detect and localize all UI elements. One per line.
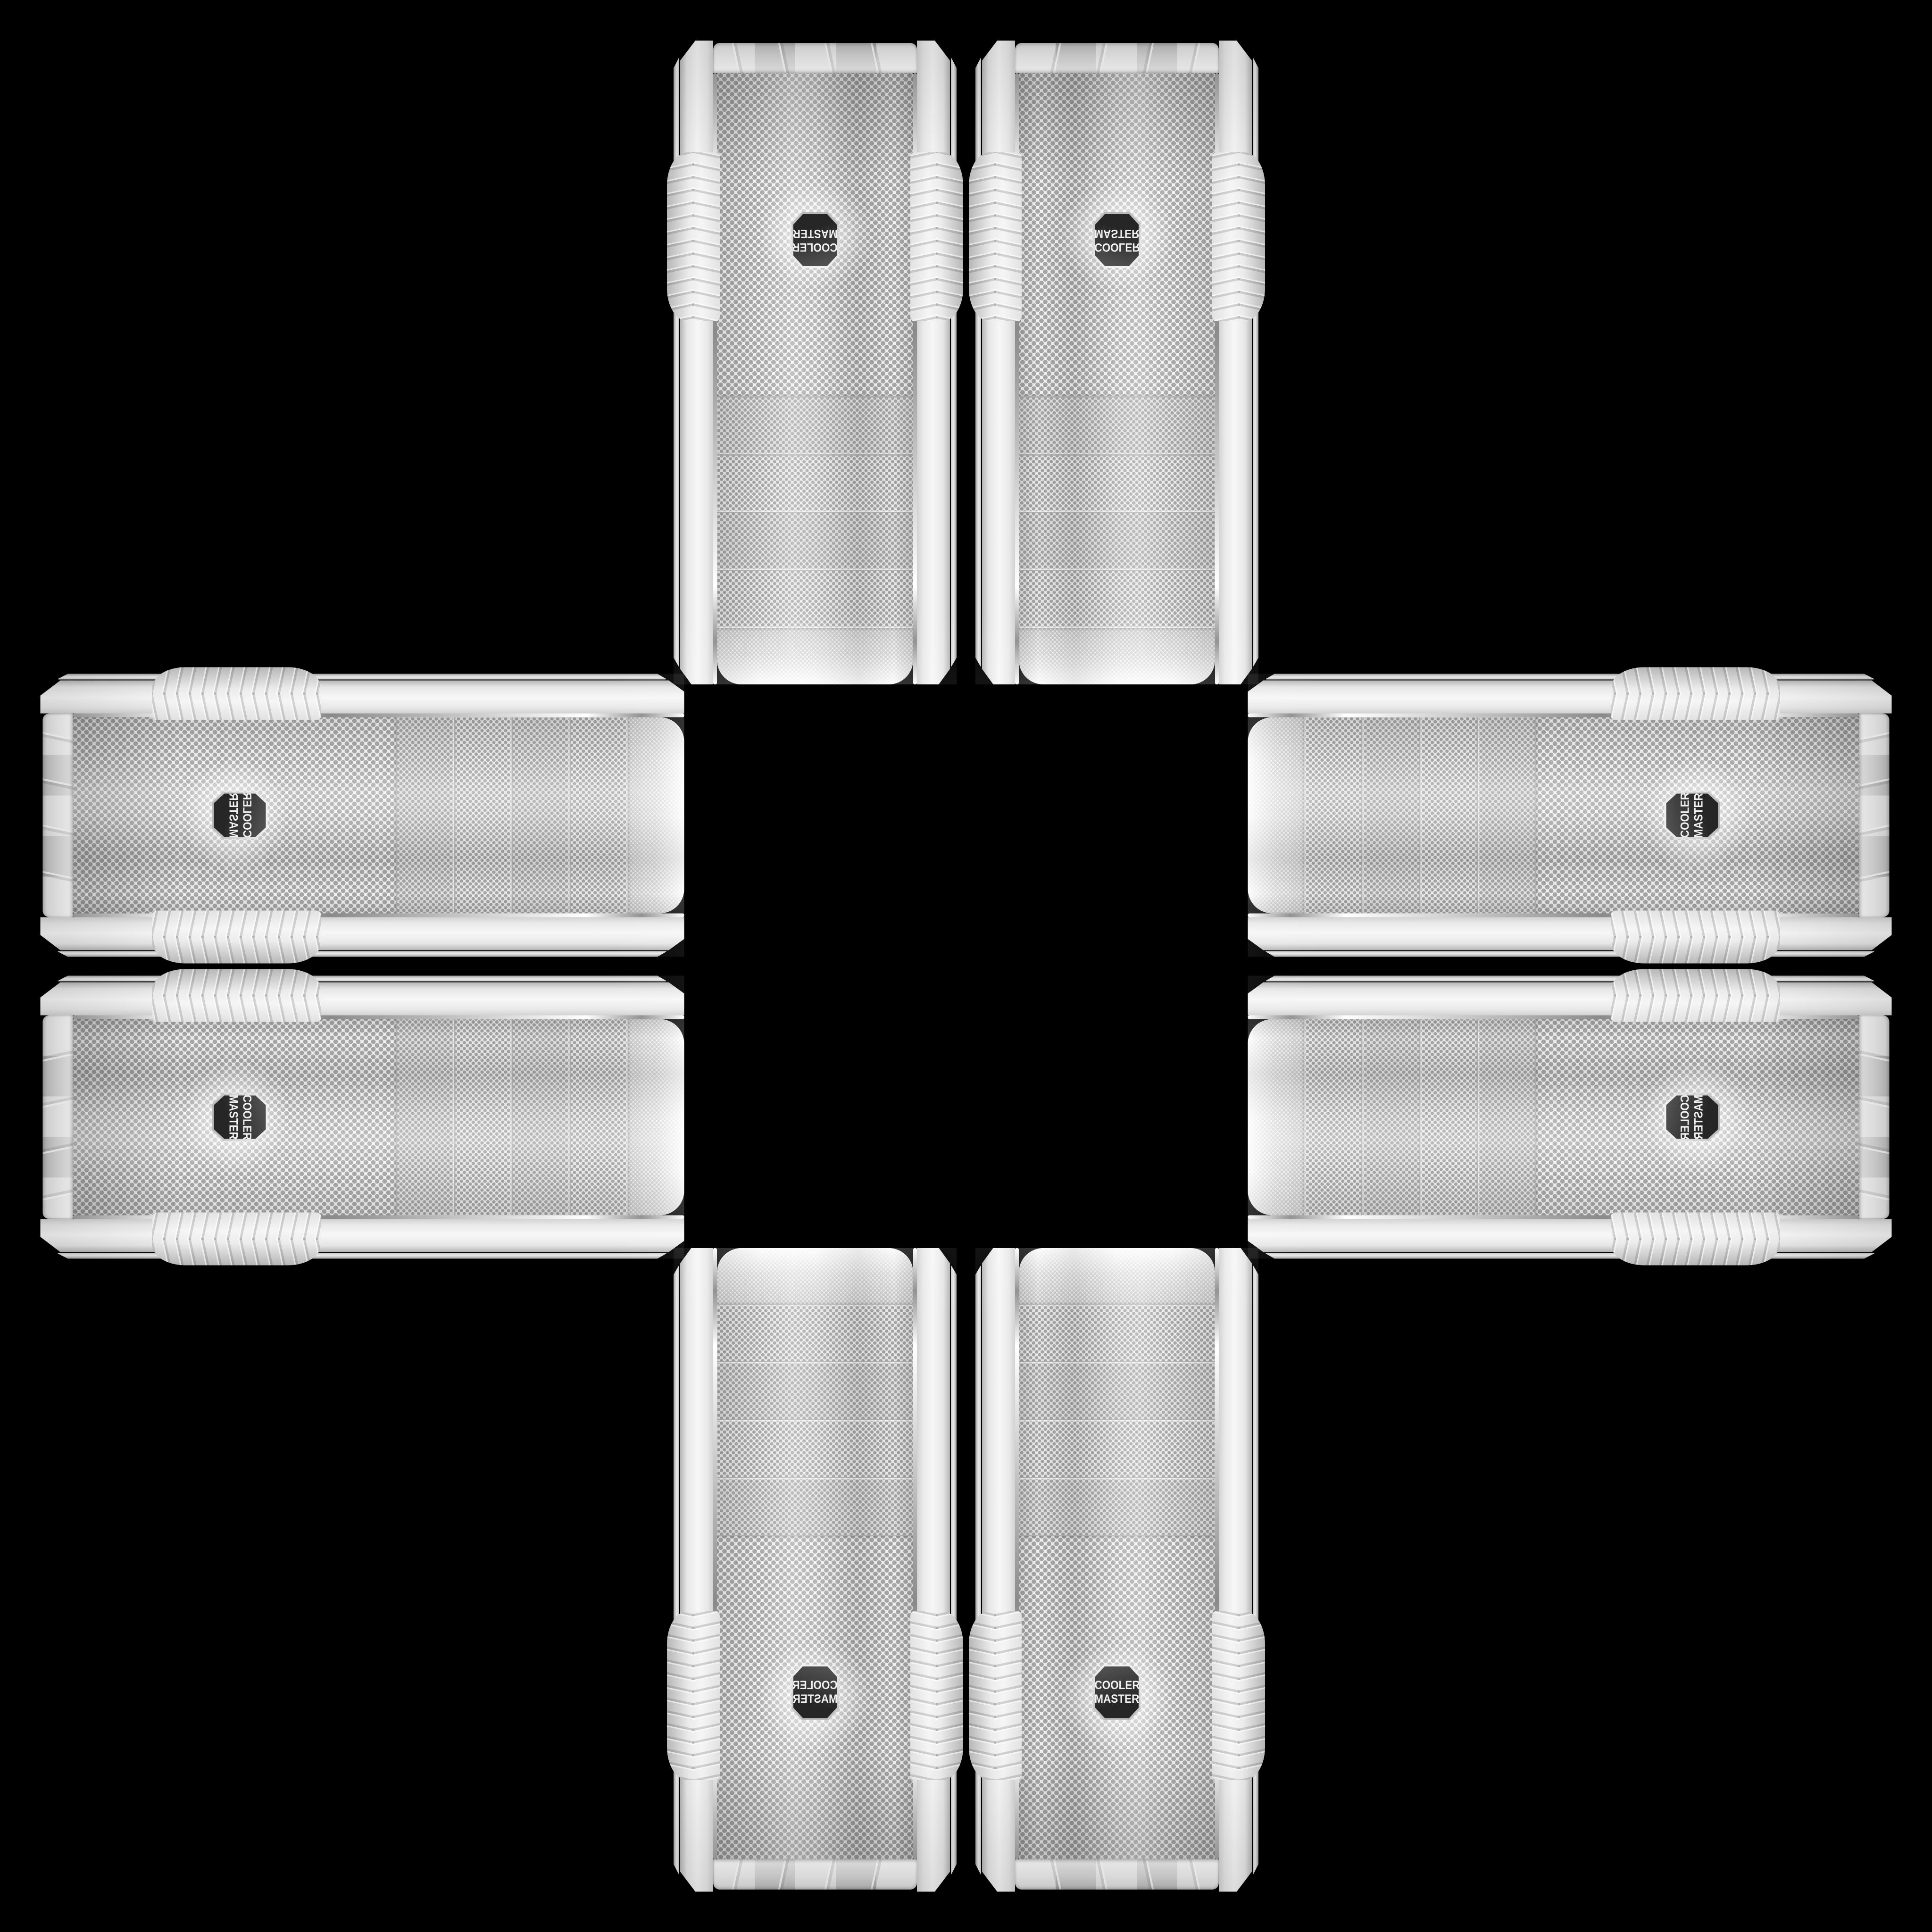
badge-text-line2: MASTER [226,1094,240,1139]
grip-ribs-left [969,1611,1022,1780]
front-rail-right [1219,41,1252,684]
bottom-cap [713,1859,917,1890]
top-mesh-panel [1248,1019,1305,1215]
side-panel-edge-right [57,674,667,679]
cooler-master-badge-icon: COOLER MASTER [791,212,839,268]
grip-rib-texture [1238,1611,1265,1780]
front-rail-left [917,41,950,684]
badge-text-line1: COOLER [792,240,838,254]
badge-face: COOLER MASTER [793,1666,837,1718]
grip-rib-texture [1611,910,1780,938]
grip-rib-texture [1212,1611,1240,1780]
front-rail-left [982,1248,1015,1892]
grip-rib-texture [152,994,321,1022]
side-panel-edge-left [1265,975,1875,981]
badge-text-line2: MASTER [792,1692,837,1706]
drive-bay-cover [1019,454,1215,512]
case-top-right: COOLER MASTER [975,41,1258,684]
grip-rib-texture [152,1212,321,1240]
grip-ribs-left [1611,969,1780,1022]
grip-ribs-right [1611,1212,1780,1265]
cooler-master-badge-icon: COOLER MASTER [1665,1093,1720,1141]
drive-bay-cover [1019,1305,1215,1363]
drive-bay-cover [717,1305,913,1363]
grip-rib-texture [1212,152,1240,321]
cooler-master-badge-icon: COOLER MASTER [1093,212,1141,268]
drive-bay-cover [1420,717,1478,913]
badge-face: COOLER MASTER [214,1095,266,1139]
badge-face: COOLER MASTER [793,214,837,266]
grip-ribs-left [1611,910,1780,963]
top-mesh-panel [1019,1248,1215,1305]
front-rail-right [1248,680,1892,713]
grip-rib-texture [1611,692,1780,720]
cooler-master-badge-icon: COOLER MASTER [212,791,268,839]
drive-bay-covers [396,717,628,913]
case-left-top: COOLER MASTER [41,674,684,957]
badge-face: COOLER MASTER [214,793,266,837]
drive-bay-covers [1305,1019,1536,1215]
grip-rib-texture [1611,667,1780,694]
side-panel-edge-left [57,975,667,981]
side-panel-edge-left [1265,951,1875,957]
drive-bay-cover [1019,1362,1215,1420]
drive-bay-cover [1362,717,1420,913]
front-rail-left [1248,917,1892,950]
drive-bay-cover [454,1019,512,1215]
drive-bay-covers [717,1305,913,1536]
drive-bay-cover [396,1019,454,1215]
grip-rib-texture [667,152,694,321]
badge-face: COOLER MASTER [1666,1095,1718,1139]
drive-bay-cover [1019,512,1215,570]
grip-ribs-right [667,1611,720,1780]
drive-bay-covers [1305,717,1536,913]
badge-text-line1: COOLER [1094,240,1140,254]
front-rail-left [917,1248,950,1892]
drive-bay-cover [1362,1019,1420,1215]
grip-rib-texture [1238,152,1265,321]
badge-face: COOLER MASTER [1095,214,1139,266]
side-panel-edge-right [674,57,679,667]
drive-bay-covers [1019,1305,1215,1536]
case-bottom-left: COOLER MASTER [674,1248,957,1892]
drive-bay-cover [1305,717,1363,913]
bottom-cap [1859,1015,1890,1219]
grip-rib-texture [1611,994,1780,1022]
grip-rib-texture [1611,936,1780,963]
grip-rib-texture [994,152,1022,321]
front-rail-left [1248,982,1892,1015]
front-rail-left [41,917,684,950]
drive-bay-cover [717,1420,913,1478]
side-panel-edge-right [674,1265,679,1875]
side-panel-edge-right [1265,1253,1875,1258]
front-rail-right [680,41,713,684]
case-top-left: COOLER MASTER [674,41,957,684]
bottom-cap [43,1015,73,1219]
badge-text-line2: MASTER [1094,226,1139,240]
badge-text-line1: COOLER [240,1094,254,1140]
side-panel-edge-left [951,57,957,667]
grip-rib-texture [994,1611,1022,1780]
bottom-cap [43,713,73,917]
grip-rib-texture [152,969,321,996]
drive-bay-cover [717,454,913,512]
grip-rib-texture [692,152,720,321]
top-mesh-panel [1019,628,1215,684]
grip-ribs-left [152,910,321,963]
badge-text-line1: COOLER [1679,1094,1692,1140]
top-mesh-panel [717,628,913,684]
front-rail-left [41,982,684,1015]
grip-rib-texture [969,152,996,321]
drive-bay-cover [512,1019,570,1215]
grip-rib-texture [969,1611,996,1780]
grip-ribs-right [152,1212,321,1265]
grip-ribs-left [152,969,321,1022]
grip-rib-texture [1611,1212,1780,1240]
top-mesh-panel [717,1248,913,1305]
front-rail-right [41,1219,684,1252]
drive-bay-cover [1019,1478,1215,1536]
drive-bay-cover [512,717,570,913]
drive-bay-cover [1305,1019,1363,1215]
top-mesh-panel [628,717,684,913]
side-panel-edge-right [1253,57,1258,667]
cooler-master-badge-icon: COOLER MASTER [791,1665,839,1720]
grip-rib-texture [1611,969,1780,996]
grip-rib-texture [667,1611,694,1780]
front-rail-right [680,1248,713,1892]
badge-face: COOLER MASTER [1095,1666,1139,1718]
bottom-cap [713,43,917,73]
front-rail-right [1219,1248,1252,1892]
grip-ribs-right [1212,152,1265,321]
grip-rib-texture [152,910,321,938]
grip-ribs-right [1611,667,1780,720]
bottom-cap [1015,43,1219,73]
drive-bay-covers [396,1019,628,1215]
side-panel-edge-left [975,1265,981,1875]
photo-canvas: COOLER MASTER [0,0,1932,1932]
front-rail-right [41,680,684,713]
grip-rib-texture [152,936,321,963]
grip-ribs-left [910,1611,963,1780]
front-rail-left [982,41,1015,684]
drive-bay-cover [717,1362,913,1420]
badge-text-line2: MASTER [1692,792,1706,837]
grip-ribs-left [969,152,1022,321]
drive-bay-cover [570,717,628,913]
drive-bay-covers [717,396,913,628]
case-right-top: COOLER MASTER [1248,674,1892,957]
cooler-master-badge-icon: COOLER MASTER [1093,1665,1141,1720]
grip-rib-texture [1611,1238,1780,1265]
badge-face: COOLER MASTER [1666,793,1718,837]
drive-bay-cover [717,396,913,454]
grip-rib-texture [152,667,321,694]
badge-text-line1: COOLER [792,1679,838,1692]
drive-bay-cover [1420,1019,1478,1215]
drive-bay-cover [717,570,913,628]
bottom-cap [1859,713,1890,917]
cooler-master-badge-icon: COOLER MASTER [1665,791,1720,839]
drive-bay-cover [1478,717,1536,913]
badge-text-line2: MASTER [792,226,837,240]
side-panel-edge-left [975,57,981,667]
side-panel-edge-right [1253,1265,1258,1875]
grip-ribs-right [1212,1611,1265,1780]
cooler-master-badge-icon: COOLER MASTER [212,1093,268,1141]
side-panel-edge-right [57,1253,667,1258]
drive-bay-cover [396,717,454,913]
side-panel-edge-right [1265,674,1875,679]
drive-bay-cover [1478,1019,1536,1215]
grip-rib-texture [910,1611,938,1780]
drive-bay-cover [717,512,913,570]
case-bottom-right: COOLER MASTER [975,1248,1258,1892]
grip-ribs-right [152,667,321,720]
drive-bay-covers [1019,396,1215,628]
side-panel-edge-left [57,951,667,957]
grip-rib-texture [152,692,321,720]
bottom-cap [1015,1859,1219,1890]
top-mesh-panel [1248,717,1305,913]
badge-text-line2: MASTER [1692,1094,1706,1139]
drive-bay-cover [570,1019,628,1215]
grip-rib-texture [910,152,938,321]
case-right-bottom: COOLER MASTER [1248,975,1892,1258]
badge-text-line1: COOLER [240,792,254,838]
badge-text-line2: MASTER [1094,1692,1139,1706]
badge-text-line1: COOLER [1094,1679,1140,1692]
grip-rib-texture [936,152,963,321]
drive-bay-cover [1019,570,1215,628]
drive-bay-cover [454,717,512,913]
drive-bay-cover [1019,1420,1215,1478]
case-left-bottom: COOLER MASTER [41,975,684,1258]
grip-rib-texture [692,1611,720,1780]
front-rail-right [1248,1219,1892,1252]
grip-ribs-left [910,152,963,321]
drive-bay-cover [717,1478,913,1536]
grip-rib-texture [936,1611,963,1780]
badge-text-line1: COOLER [1679,792,1692,838]
drive-bay-cover [1019,396,1215,454]
side-panel-edge-left [951,1265,957,1875]
top-mesh-panel [628,1019,684,1215]
grip-rib-texture [152,1238,321,1265]
grip-ribs-right [667,152,720,321]
badge-text-line2: MASTER [226,792,240,837]
